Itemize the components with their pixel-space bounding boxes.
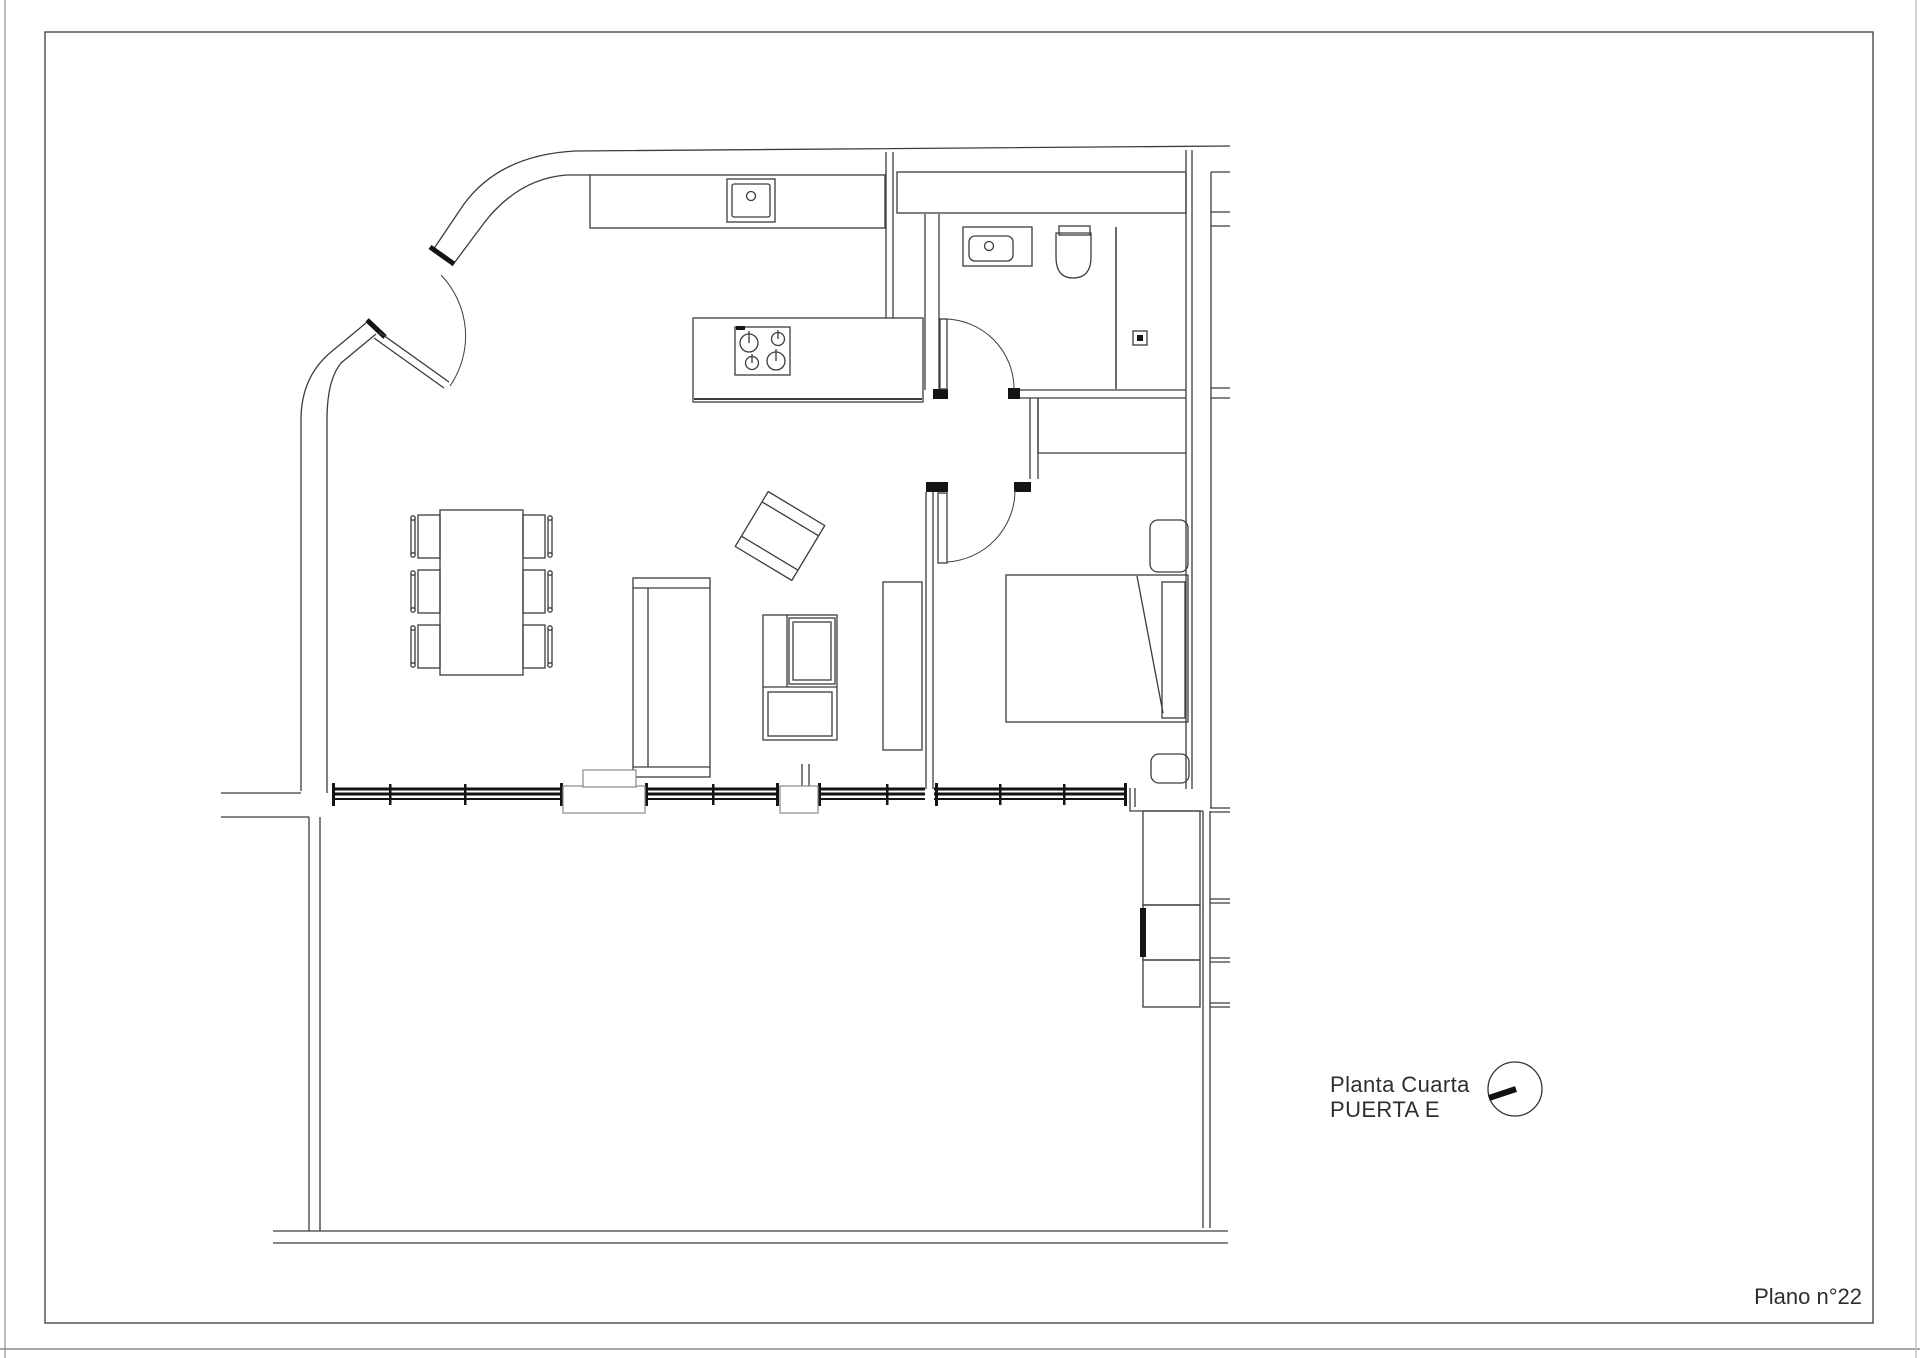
dining-chair (411, 515, 440, 558)
kitchen-faucet-icon (747, 192, 756, 201)
bath-sink-basin (969, 236, 1013, 261)
balcony-left-wall (309, 817, 320, 1231)
sheet-number: Plano n°22 (1754, 1284, 1862, 1310)
balcony-box (1143, 811, 1200, 905)
neighbor-stubs-top (1211, 172, 1230, 398)
bedroom-door-leaf (938, 493, 947, 563)
left-wall-inner (327, 334, 376, 793)
balcony (1140, 811, 1210, 1228)
compass-icon (1488, 1062, 1542, 1116)
window-segment (934, 783, 1127, 806)
toilet-bowl (1056, 233, 1091, 278)
interior-doors (938, 319, 1015, 563)
bath-door-leaf (940, 319, 947, 389)
balcony-box (1143, 960, 1200, 1007)
neighbor-unit-lines (1210, 172, 1230, 1007)
bed-pillow-strip (1162, 582, 1185, 718)
window-segment (332, 783, 563, 806)
sofa (633, 578, 710, 777)
wardrobe (1038, 399, 1186, 453)
cooktop-control (736, 326, 745, 330)
dining-chair (411, 625, 440, 668)
bedroom (1006, 399, 1189, 783)
hall-bedroom-wall (1030, 398, 1038, 479)
dining-table (440, 510, 523, 675)
bath-bedroom-right-wall (1186, 150, 1192, 789)
window-pillar (583, 770, 636, 787)
exterior-walls (221, 146, 1230, 1243)
dining-chair (523, 625, 552, 668)
kitchen-counter (590, 175, 885, 228)
bed-fold-line (1137, 576, 1163, 713)
bedroom-door-jamb-right (1014, 482, 1031, 492)
bath-door-swing-arc (944, 319, 1014, 389)
bath-cabinet-band (897, 172, 1186, 213)
floor-plan-canvas (0, 0, 1920, 1358)
nightstand (1150, 520, 1188, 572)
neighbor-stubs-bottom (1210, 808, 1230, 1007)
sheet-frame (0, 0, 1920, 1358)
dining-chair (411, 570, 440, 613)
sideboard (883, 582, 922, 750)
tv-unit (763, 615, 837, 740)
bath-left-wall (925, 214, 939, 390)
entrance-door-leaf (374, 332, 449, 388)
bath-door-jamb-right (1008, 388, 1020, 399)
living-bedroom-wall (926, 492, 933, 789)
bedroom-door-jamb-left (926, 482, 948, 492)
bedroom-balcony-corner (1130, 788, 1203, 811)
balcony-box-door (1140, 908, 1146, 957)
floor-label-line2: PUERTA E (1330, 1097, 1440, 1123)
floor-label-line1: Planta Cuarta (1330, 1072, 1470, 1098)
top-wall-inner (452, 175, 590, 266)
window-segment (645, 783, 779, 806)
window-segment (818, 783, 925, 806)
left-wall-outer (301, 323, 366, 791)
entry-jamb-top (430, 247, 454, 264)
window-pillar (563, 786, 645, 813)
window-pillar (780, 786, 818, 813)
window-band (332, 764, 1127, 813)
west-wall-arm (221, 793, 309, 817)
balcony-right-wall (1203, 811, 1210, 1228)
shower-drain-dot (1137, 335, 1143, 341)
dining-chair (523, 570, 552, 613)
balcony-box (1143, 905, 1200, 960)
armchair (735, 492, 825, 581)
bath-faucet-icon (985, 242, 994, 251)
balcony-bottom-wall (273, 1231, 1228, 1243)
entrance-door (374, 275, 466, 388)
window-mullion-stub (802, 764, 809, 787)
bath-door-jamb-left (933, 389, 948, 399)
kitchen (590, 175, 923, 402)
dining-chair (523, 515, 552, 558)
entrance-door-swing-arc (441, 275, 466, 386)
interior-walls (886, 150, 1203, 811)
kitchen-island (693, 318, 923, 402)
kitchen-bath-wall (886, 152, 893, 318)
bath-bottom-wall (1016, 390, 1186, 398)
top-wall-outer (433, 146, 1230, 250)
nightstand (1151, 754, 1189, 783)
living-room (411, 492, 922, 777)
drawing-sheet: Planta Cuarta PUERTA E Plano n°22 (0, 0, 1920, 1358)
title-border (45, 32, 1873, 1323)
bedroom-door-swing-arc (947, 490, 1015, 562)
compass-needle (1489, 1089, 1516, 1098)
